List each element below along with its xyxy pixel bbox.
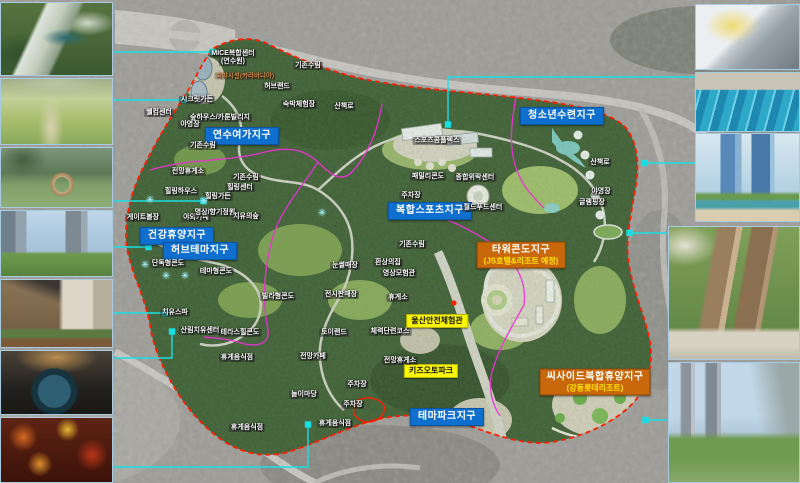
facility-label: 야영장 [589,188,612,196]
facility-label: 허브랜드 [262,83,292,91]
facility-label: 치유의숲 [231,213,261,221]
poi-label: 울산안전체험관 [406,314,468,328]
facility-label: 힐링하우스 [163,188,199,196]
facility-label: 숙박체험장 [281,101,317,109]
facility-label: 휴게음식점 [229,424,265,432]
facility-label: 월드푸드센터 [462,204,505,212]
photo-garden-path [0,78,113,145]
facility-label: 야영장 [178,121,201,129]
photo-villa-patio [0,279,113,348]
facility-label: 글램핑장 [577,199,607,207]
facility-label: 환상의집 [373,259,403,267]
poi-label: 키즈오토파크 [404,364,458,378]
facility-label: 산책로 [588,159,611,167]
photo-tower-condo-aerial [668,226,800,360]
photo-indoor-ski [695,4,800,70]
photo-seaside-complex [668,362,800,483]
photo-hotel-towers [0,210,113,277]
facility-label: 전망휴게소 [170,168,206,176]
photo-market-interior [0,417,113,483]
sparkle-marker-icon: ✳ [318,209,326,218]
zone-label: 허브테마지구 [163,242,237,260]
facility-label: 스포츠콤플렉스 [412,137,461,145]
facility-label: 체력단련코스 [369,328,412,336]
facility-label: 주차장 [345,381,368,389]
facility-label: 기존수림 [293,62,323,70]
facility-label: 주차장 [399,192,422,200]
zone-label-title: 씨사이드복합휴양지구 [547,372,644,384]
facility-label: 눈썰매장 [330,262,360,270]
zone-label-subtitle: (강동롯데리조트) [547,384,644,393]
zone-label-subtitle: (JS호텔&리조트 예정) [484,257,559,266]
facility-label: 주차장 [341,401,364,409]
facility-label: 기존수림 [231,174,261,182]
sparkle-marker-icon: ✳ [200,197,208,206]
facility-label: 단독형콘도 [150,260,186,268]
facility-label: 기존수림 [397,241,427,249]
facility-label: (연수원) [219,58,247,66]
facility-label: 종합위락센터 [454,174,497,182]
zone-label: 복합스포츠지구 [388,202,472,220]
facility-label: MICE복합센터 [209,50,256,58]
facility-label: 패밀리콘도 [410,173,446,181]
facility-label: 전시판매장 [323,291,359,299]
photo-swimming-pool [695,72,800,132]
zone-label: 테마파크지구 [410,408,484,426]
tourism-complex-masterplan: 연수여가지구청소년수련지구복합스포츠지구건강휴양지구허브테마지구테마파크지구타워… [0,0,800,483]
photo-park-sculpture [0,147,113,208]
facility-label: 웰컴센터 [144,109,174,117]
sparkle-marker-icon: ✳ [146,196,154,205]
zone-label: 청소년수련지구 [520,107,604,125]
facility-label: 시크릿가든 [179,96,215,104]
facility-label: 놀이마당 [289,391,319,399]
photo-glass-towers [695,133,800,222]
facility-label: 테라스힐콘도 [219,329,262,337]
sparkle-marker-icon: ✳ [162,272,170,281]
facility-label: 치유스파 [160,309,190,317]
facility-label: 숙박시설(카라바니아) [215,73,275,80]
facility-label: 기존수림 [188,142,218,150]
photo-resort-hotel-aerial [0,2,113,76]
photo-spa-pool [0,350,113,415]
zone-label-title: 타워콘도지구 [484,245,559,257]
facility-label: 전망카페 [298,353,328,361]
facility-label: 휴게소 [386,294,409,302]
facility-label: 영상모험관 [381,270,417,278]
facility-label: 휴게음식점 [317,420,353,428]
facility-label: 산책로 [332,103,355,111]
facility-label: 빌라형콘도 [260,293,296,301]
zone-label: 타워콘도지구(JS호텔&리조트 예정) [477,242,566,269]
facility-label: 산림치유센터 [179,327,222,335]
facility-label: 휴게음식점 [219,354,255,362]
facility-label: 테마형콘도 [198,268,234,276]
facility-label: 전망휴게소 [382,357,418,365]
facility-label: 토이랜드 [319,329,349,337]
facility-label: 게이트볼장 [125,214,161,222]
zone-label: 씨사이드복합휴양지구(강동롯데리조트) [540,369,651,396]
sparkle-marker-icon: ✳ [141,261,149,270]
sparkle-marker-icon: ✳ [181,272,189,281]
facility-label: 힐링센터 [225,184,255,192]
